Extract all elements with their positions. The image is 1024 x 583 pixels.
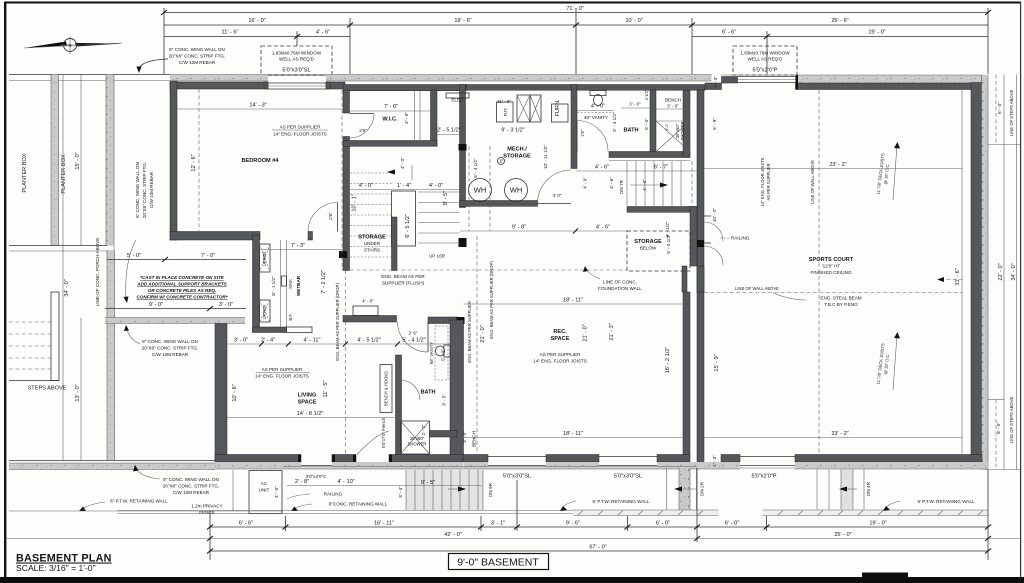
svg-text:23' - 2": 23' - 2": [831, 431, 848, 437]
svg-text:9'-0" BASEMENT: 9'-0" BASEMENT: [457, 557, 539, 569]
svg-text:UP 16R: UP 16R: [429, 254, 446, 259]
svg-text:13' - 0": 13' - 0": [75, 384, 81, 401]
svg-text:8" CONC. WING WALL ON: 8" CONC. WING WALL ON: [142, 339, 198, 344]
svg-text:1.2m PRIVACY: 1.2m PRIVACY: [191, 504, 222, 509]
svg-text:6' - 6": 6' - 6": [722, 30, 736, 36]
svg-text:3' - 0": 3' - 0": [234, 338, 248, 344]
svg-text:21' - 0": 21' - 0": [583, 324, 589, 341]
svg-text:FUT.: FUT.: [503, 108, 508, 117]
svg-text:20"X8" CONC. STRIP FTG.: 20"X8" CONC. STRIP FTG.: [169, 54, 226, 59]
svg-text:42' - 0": 42' - 0": [444, 532, 461, 538]
svg-text:BATH: BATH: [623, 128, 638, 134]
svg-text:11' - 9": 11' - 9": [497, 99, 511, 104]
svg-text:3' - 4": 3' - 4": [398, 486, 403, 498]
svg-text:10' - 0": 10' - 0": [712, 208, 717, 223]
svg-text:4' - 9": 4' - 9": [404, 112, 409, 124]
svg-text:15' - 0": 15' - 0": [75, 152, 81, 169]
svg-text:WH: WH: [510, 186, 523, 195]
svg-text:6' - 7": 6' - 7": [654, 165, 668, 171]
svg-text:UNDER: UNDER: [364, 241, 381, 246]
svg-text:LINE OF CONC.: LINE OF CONC.: [603, 280, 637, 285]
svg-text:SHOWER: SHOWER: [408, 442, 427, 447]
svg-text:PLANTER BOX: PLANTER BOX: [61, 154, 67, 193]
svg-text:3' - 0": 3' - 0": [667, 104, 679, 109]
svg-text:6' - 6": 6' - 6": [239, 521, 253, 527]
svg-text:5'0"x2'0"P: 5'0"x2'0"P: [752, 68, 777, 74]
svg-text:N: N: [68, 43, 71, 48]
svg-text:14" ENG. FLOOR JOISTS: 14" ENG. FLOOR JOISTS: [273, 132, 327, 137]
svg-text:48" VANITY: 48" VANITY: [584, 115, 608, 120]
svg-text:3' - 1": 3' - 1": [491, 521, 505, 527]
svg-text:3' - 0": 3' - 0": [462, 431, 467, 443]
svg-text:LINE OF WALL ABOVE: LINE OF WALL ABOVE: [735, 286, 779, 291]
svg-text:STORAGE: STORAGE: [503, 154, 531, 160]
svg-text:LINE OF STEPS ABOVE: LINE OF STEPS ABOVE: [1009, 90, 1014, 137]
svg-text:7' - 2 1/2": 7' - 2 1/2": [321, 270, 327, 294]
svg-text:WELL AS REQ'D: WELL AS REQ'D: [748, 57, 784, 62]
svg-text:AS PER SUPPLIER: AS PER SUPPLIER: [766, 163, 771, 200]
svg-text:AS PER SUPPLIER: AS PER SUPPLIER: [540, 352, 582, 357]
svg-text:ENG. BEAM AS PER SUPPLIER (DRO: ENG. BEAM AS PER SUPPLIER (DROP): [489, 261, 494, 339]
svg-text:AS PER SUPPLIER: AS PER SUPPLIER: [280, 125, 322, 130]
svg-text:1' - 3": 1' - 3": [712, 455, 717, 467]
svg-text:ENG. BEAM AS PER SUPPLIER: ENG. BEAM AS PER SUPPLIER: [467, 301, 472, 362]
svg-text:6' - 5 1/2": 6' - 5 1/2": [405, 214, 411, 238]
svg-text:WH: WH: [474, 186, 487, 195]
svg-text:3' - 0": 3' - 0": [219, 302, 233, 308]
svg-text:STAIRS: STAIRS: [364, 248, 380, 253]
svg-text:4' - 11": 4' - 11": [304, 338, 321, 344]
svg-text:1' - 3": 1' - 3": [713, 76, 718, 88]
svg-text:5'0"x3'0"SL: 5'0"x3'0"SL: [282, 68, 310, 74]
svg-text:7' - 3": 7' - 3": [291, 243, 305, 249]
svg-text:BENCH: BENCH: [665, 98, 681, 103]
svg-text:6' - 0": 6' - 0": [725, 521, 739, 527]
svg-text:4' - 6": 4' - 6": [609, 177, 614, 189]
svg-text:FINISHED CEILING: FINISHED CEILING: [810, 270, 852, 275]
svg-text:34' - 0": 34' - 0": [1011, 263, 1017, 280]
svg-text:2'6": 2'6": [328, 212, 333, 220]
svg-text:STEPS ABOVE: STEPS ABOVE: [28, 386, 67, 392]
svg-text:8" CONC. WING WALL ON: 8" CONC. WING WALL ON: [163, 477, 219, 482]
svg-text:ENG. STEAL BEAM: ENG. STEAL BEAM: [820, 296, 861, 301]
svg-text:21' - 3": 21' - 3": [609, 323, 615, 340]
svg-text:RAILING: RAILING: [731, 236, 750, 241]
svg-text:RAILING: RAILING: [324, 492, 343, 497]
svg-text:DN 4R: DN 4R: [866, 481, 871, 495]
svg-text:ELEC.: ELEC.: [451, 98, 464, 103]
svg-text:PLANTER BOX: PLANTER BOX: [22, 153, 28, 192]
svg-text:15' - 9": 15' - 9": [714, 354, 720, 371]
svg-text:4' - 0": 4' - 0": [400, 157, 405, 169]
svg-text:36"x60": 36"x60": [410, 436, 425, 441]
svg-text:2' - 2": 2' - 2": [421, 424, 426, 435]
svg-text:SINK: SINK: [288, 279, 293, 289]
svg-text:8" CONC. WING WALL ON: 8" CONC. WING WALL ON: [135, 162, 140, 218]
svg-text:4' - 0": 4' - 0": [274, 486, 279, 498]
svg-text:6' - 0": 6' - 0": [996, 422, 1001, 434]
svg-text:1.83Mx0.76M WINDOW: 1.83Mx0.76M WINDOW: [740, 51, 790, 56]
svg-text:25' - 6": 25' - 6": [831, 18, 848, 24]
svg-text:31' - 6": 31' - 6": [955, 268, 961, 285]
svg-text:16' - 0": 16' - 0": [248, 18, 265, 24]
svg-text:4' - 6": 4' - 6": [316, 30, 330, 36]
svg-text:11' - 6": 11' - 6": [222, 30, 239, 36]
svg-text:11' - 5": 11' - 5": [323, 381, 329, 398]
svg-text:20"X8" CONC. STRIP FTG.: 20"X8" CONC. STRIP FTG.: [142, 346, 199, 351]
svg-text:10' - 11 1/2": 10' - 11 1/2": [543, 145, 548, 169]
svg-text:ENG. BEAM AS PER: ENG. BEAM AS PER: [381, 274, 425, 279]
svg-text:7' - 0": 7' - 0": [201, 253, 215, 259]
svg-text:23' - 2": 23' - 2": [829, 162, 846, 168]
svg-text:71' - 0": 71' - 0": [566, 6, 583, 12]
svg-text:2'6": 2'6": [580, 129, 585, 136]
svg-text:4' - 0": 4' - 0": [359, 183, 373, 189]
svg-text:5'0"x3'0"SL: 5'0"x3'0"SL: [503, 474, 531, 480]
svg-text:10' - 0": 10' - 0": [625, 18, 642, 24]
svg-text:3' - 5": 3' - 5": [442, 394, 447, 406]
svg-text:LINE OF STEPS ABOVE: LINE OF STEPS ABOVE: [1009, 397, 1014, 444]
svg-text:14" ENG. FLOOR JOISTS: 14" ENG. FLOOR JOISTS: [255, 374, 309, 379]
svg-text:STORAGE: STORAGE: [358, 235, 386, 241]
svg-text:SPORTS COURT: SPORTS COURT: [809, 257, 854, 263]
svg-text:2' - 8": 2' - 8": [295, 479, 309, 485]
svg-text:MECH./: MECH./: [507, 147, 527, 153]
svg-text:AS PER SUPPLIER: AS PER SUPPLIER: [262, 367, 304, 372]
svg-text:REC.: REC.: [553, 329, 567, 335]
svg-text:4' - 0": 4' - 0": [642, 179, 647, 191]
svg-text:8' - 1 1/2": 8' - 1 1/2": [271, 276, 276, 296]
svg-text:AC: AC: [261, 481, 268, 486]
svg-text:14' - 3": 14' - 3": [249, 103, 266, 109]
svg-text:16' - 2 1/2": 16' - 2 1/2": [665, 347, 671, 374]
svg-text:LIVING: LIVING: [298, 393, 317, 399]
svg-text:C/W 10M REBAR: C/W 10M REBAR: [173, 490, 210, 495]
svg-text:8"CONC. RETAINING WALL: 8"CONC. RETAINING WALL: [329, 502, 388, 507]
svg-text:9' - 6": 9' - 6": [566, 521, 580, 527]
svg-text:14" ENG. FLOOR JOISTS: 14" ENG. FLOOR JOISTS: [760, 157, 765, 206]
svg-text:20"X8" CONC. STRIP FTG.: 20"X8" CONC. STRIP FTG.: [142, 162, 147, 219]
svg-text:9' - 0": 9' - 0": [149, 302, 163, 308]
svg-text:FURN.: FURN.: [555, 99, 561, 117]
svg-text:6' P.T.W. RETAINING WALL: 6' P.T.W. RETAINING WALL: [918, 499, 975, 504]
svg-text:5' - 4 1/2": 5' - 4 1/2": [473, 158, 478, 178]
svg-text:4' - 10": 4' - 10": [337, 479, 354, 485]
svg-text:'12'0" HT: '12'0" HT: [822, 264, 841, 269]
svg-text:6" P.T.W. RETAINING WALL: 6" P.T.W. RETAINING WALL: [110, 499, 168, 504]
svg-text:6' P.T.W. RETAINING WALL: 6' P.T.W. RETAINING WALL: [593, 499, 650, 504]
svg-text:4' - 0": 4' - 0": [429, 183, 443, 189]
svg-text:68" VANITY: 68" VANITY: [429, 342, 434, 364]
svg-text:8" CONC. WING WALL ON: 8" CONC. WING WALL ON: [169, 47, 225, 52]
svg-text:67' - 0": 67' - 0": [589, 545, 606, 551]
svg-text:5' - 4 1/2": 5' - 4 1/2": [612, 112, 617, 132]
svg-text:19' - 6": 19' - 6": [454, 18, 471, 24]
svg-text:W.I.C.: W.I.C.: [382, 117, 398, 123]
svg-text:WELL AS REQ'D: WELL AS REQ'D: [279, 57, 315, 62]
svg-text:SHOWER: SHOWER: [680, 122, 685, 141]
svg-text:T.B.C BY P.ENG: T.B.C BY P.ENG: [824, 302, 858, 307]
svg-text:19' - 0": 19' - 0": [868, 30, 885, 36]
svg-text:DN 9R: DN 9R: [488, 482, 493, 496]
svg-text:DN 7R: DN 7R: [619, 179, 624, 193]
svg-text:9' - 5": 9' - 5": [421, 480, 435, 486]
svg-text:UPPER: UPPER: [262, 252, 267, 266]
svg-text:OR CONCRETE PILES AS REQ.: OR CONCRETE PILES AS REQ.: [148, 288, 217, 293]
svg-text:21' - 0": 21' - 0": [480, 325, 486, 342]
svg-text:10' - 6": 10' - 6": [232, 384, 238, 401]
svg-text:C/W 10M REBAR: C/W 10M REBAR: [152, 352, 189, 357]
svg-text:34' - 0": 34' - 0": [64, 279, 70, 296]
svg-text:22' - 0": 22' - 0": [998, 263, 1004, 280]
svg-text:BATH: BATH: [420, 390, 435, 396]
svg-text:25' - 0": 25' - 0": [834, 532, 851, 538]
svg-text:BENCH & HOOKS: BENCH & HOOKS: [384, 371, 389, 406]
svg-text:LINE OF WALL ABOVE: LINE OF WALL ABOVE: [810, 160, 815, 204]
svg-text:19' - 0": 19' - 0": [869, 521, 886, 527]
svg-text:ADD ADDITIONAL SUPPORT BRACKET: ADD ADDITIONAL SUPPORT BRACKETS: [136, 282, 227, 287]
svg-text:6' - 0": 6' - 0": [656, 521, 670, 527]
svg-text:ENG. BEAM AS PER SUPPLIER (DRO: ENG. BEAM AS PER SUPPLIER (DROP): [335, 283, 340, 361]
svg-text:5' - 0": 5' - 0": [644, 118, 649, 130]
svg-text:10' - 1": 10' - 1": [352, 194, 358, 211]
svg-text:12' - 6": 12' - 6": [191, 154, 197, 171]
svg-text:4' - 0": 4' - 0": [362, 299, 374, 304]
svg-text:16' - 11": 16' - 11": [374, 521, 394, 527]
svg-text:2'-2": 2'-2": [665, 123, 669, 131]
svg-text:C/W 10M REBAR: C/W 10M REBAR: [179, 60, 216, 65]
svg-text:*CAST IN PLACE CONCRETE ON SIT: *CAST IN PLACE CONCRETE ON SITE: [140, 275, 225, 280]
svg-text:WETBAR: WETBAR: [296, 275, 301, 296]
svg-text:14' - 8 1/2": 14' - 8 1/2": [297, 411, 324, 417]
svg-text:B.F.: B.F.: [288, 313, 293, 320]
svg-text:5' - 0 1/2": 5' - 0 1/2": [666, 234, 671, 254]
svg-text:4' - 6": 4' - 6": [596, 225, 610, 231]
svg-text:UNIT: UNIT: [259, 488, 270, 493]
svg-text:18' - 11": 18' - 11": [563, 431, 583, 437]
svg-text:20"X8" CONC. STRIP FTG.: 20"X8" CONC. STRIP FTG.: [163, 484, 220, 489]
svg-text:2'6": 2'6": [359, 128, 367, 133]
svg-text:SCALE: 3/16" = 1'-0": SCALE: 3/16" = 1'-0": [16, 563, 96, 573]
svg-text:9' - 8": 9' - 8": [512, 225, 526, 231]
svg-text:BEDROOM #4: BEDROOM #4: [242, 158, 280, 164]
svg-text:BENCH: BENCH: [472, 431, 477, 447]
svg-text:FD: FD: [500, 158, 504, 163]
svg-text:14" ENG. FLOOR JOISTS: 14" ENG. FLOOR JOISTS: [533, 359, 587, 364]
svg-text:5' - 4 1/2": 5' - 4 1/2": [402, 338, 426, 344]
svg-text:4' - 0": 4' - 0": [591, 104, 605, 110]
svg-text:SPACE: SPACE: [551, 336, 570, 342]
svg-text:CONFIRM W/ CONCRETE CONTRACTOR: CONFIRM W/ CONCRETE CONTRACTOR*: [136, 295, 227, 300]
svg-text:5'0"x7'0" French: 5'0"x7'0" French: [381, 417, 386, 448]
svg-text:6' - 0": 6' - 0": [997, 102, 1002, 114]
svg-text:2' 6": 2' 6": [409, 331, 418, 336]
svg-text:SPACE: SPACE: [298, 400, 317, 406]
svg-text:UPPER: UPPER: [262, 305, 267, 319]
svg-text:DN 2R: DN 2R: [700, 481, 705, 495]
svg-text:1' - 4": 1' - 4": [397, 183, 411, 189]
svg-text:5'0"x3'0"SL: 5'0"x3'0"SL: [614, 474, 642, 480]
svg-text:5'0"x2'0"P: 5'0"x2'0"P: [751, 474, 776, 480]
svg-text:9' - 3 1/2": 9' - 3 1/2": [501, 128, 525, 134]
svg-text:2' - 5 1/2": 2' - 5 1/2": [437, 128, 461, 134]
svg-text:1.83Mx0.76M WINDOW: 1.83Mx0.76M WINDOW: [272, 51, 322, 56]
svg-text:SUPPLIER (FLUSH): SUPPLIER (FLUSH): [382, 281, 425, 286]
svg-text:8' - 5": 8' - 5": [443, 191, 449, 205]
svg-text:FOUNDATION WALL: FOUNDATION WALL: [598, 286, 642, 291]
svg-text:7' - 0": 7' - 0": [384, 104, 398, 110]
svg-text:4' - 6": 4' - 6": [595, 165, 609, 171]
svg-text:4' - 9": 4' - 9": [583, 177, 588, 189]
svg-text:LINE OF CONC. PORCH ABOVE: LINE OF CONC. PORCH ABOVE: [95, 238, 100, 307]
svg-text:4' - 5 1/2": 4' - 5 1/2": [357, 338, 381, 344]
svg-text:3' 0": 3' 0": [553, 193, 562, 198]
svg-text:5' - 9": 5' - 9": [712, 118, 717, 130]
svg-text:18' - 11": 18' - 11": [563, 298, 583, 304]
svg-text:C/W 10M REBAR: C/W 10M REBAR: [149, 171, 154, 208]
svg-text:3' - 0": 3' - 0": [629, 102, 641, 107]
svg-text:4 1/2": 4 1/2": [644, 89, 649, 100]
svg-text:BELOW: BELOW: [640, 246, 657, 251]
svg-text:STORAGE: STORAGE: [634, 239, 662, 245]
